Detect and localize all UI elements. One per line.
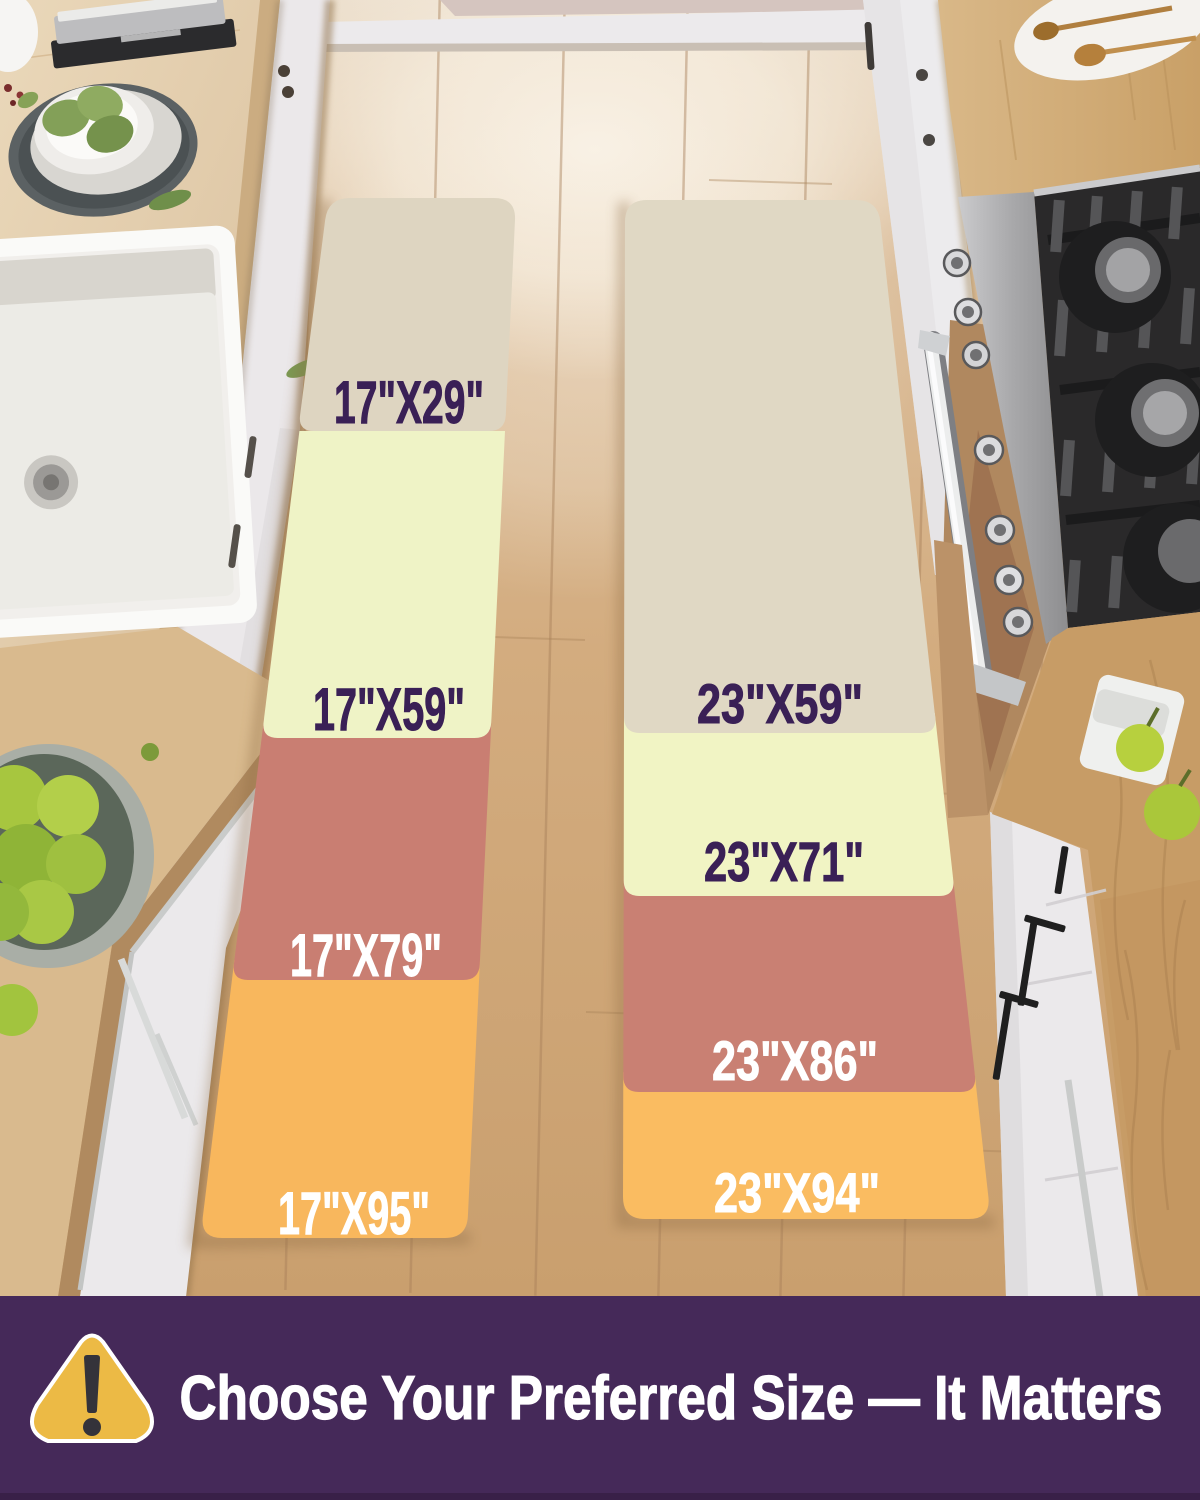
svg-text:17"X59": 17"X59"	[313, 676, 465, 743]
svg-text:23"X86": 23"X86"	[712, 1029, 878, 1092]
svg-text:17"X95": 17"X95"	[278, 1180, 430, 1247]
svg-text:23"X71": 23"X71"	[704, 830, 864, 893]
svg-text:17"X29": 17"X29"	[334, 369, 484, 436]
svg-text:23"X59": 23"X59"	[697, 672, 863, 735]
svg-text:17"X79": 17"X79"	[290, 922, 442, 989]
svg-text:Choose Your Preferred Size — I: Choose Your Preferred Size — It Matters	[180, 1364, 1163, 1433]
svg-text:23"X94": 23"X94"	[714, 1161, 880, 1224]
